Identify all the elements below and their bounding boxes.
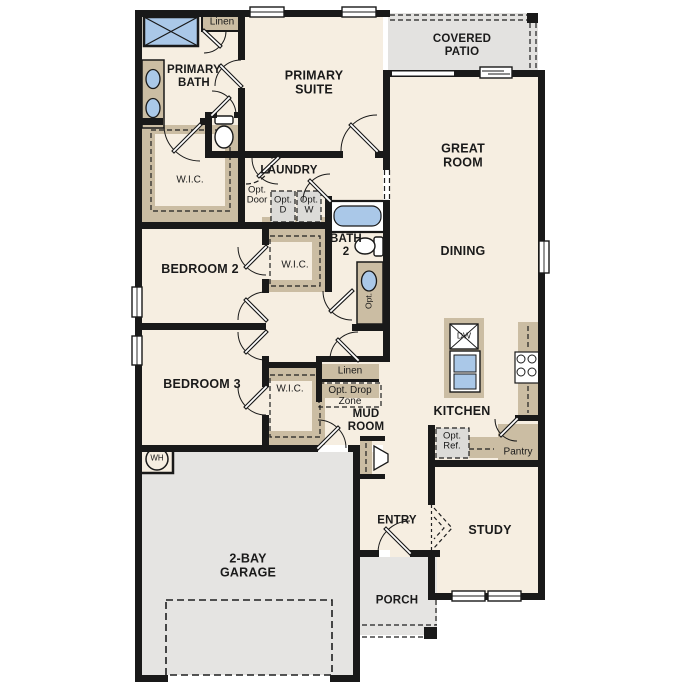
sink-icon [146,70,160,89]
label-opt-ref: Opt. Ref. [443,432,461,453]
label-bedroom3: BEDROOM 3 [163,377,241,391]
floor-plan: Linen PRIMARY BATH PRIMARY SUITE COVERED… [0,0,687,687]
label-linen-top: Linen [210,17,234,28]
label-opt-drop-zone: Opt. Drop Zone [328,385,371,407]
label-primary-suite: PRIMARY SUITE [285,69,344,98]
label-primary-bath: PRIMARY BATH [167,64,221,90]
label-entry: ENTRY [377,514,417,527]
label-garage: 2-BAY GARAGE [220,552,276,581]
shower-icon [144,17,198,46]
sink-icon [146,99,160,118]
bathtub-icon [328,201,388,232]
label-great-room: GREAT ROOM [441,142,485,171]
label-dining: DINING [441,244,486,258]
label-covered-patio: COVERED PATIO [433,33,491,59]
label-porch: PORCH [376,594,419,607]
label-opt-vanity: Opt. [364,293,373,309]
label-bath2: BATH 2 [330,233,362,259]
label-opt-dryer: Opt. D [274,196,292,217]
label-kitchen: KITCHEN [434,404,491,418]
floor-plan-drawing [0,0,687,687]
label-linen-hall: Linen [338,366,362,377]
label-water-heater: WH [150,455,163,464]
label-bedroom2: BEDROOM 2 [161,262,239,276]
label-laundry: LAUNDRY [260,164,317,177]
label-wic-primary: W.I.C. [176,175,203,186]
sink-icon [362,271,377,291]
label-wic-bed3: W.I.C. [276,384,303,395]
label-opt-door: Opt. Door [247,186,268,207]
kitchen-sink-icon [450,351,480,392]
toilet-icon [215,116,233,148]
label-pantry: Pantry [504,447,533,458]
label-dishwasher: DW [457,331,471,340]
label-wic-bed2: W.I.C. [281,260,308,271]
cooktop-icon [515,352,541,383]
label-opt-washer: Opt. W [300,196,318,217]
label-mud-room: MUD ROOM [348,408,385,434]
label-study: STUDY [468,523,511,537]
